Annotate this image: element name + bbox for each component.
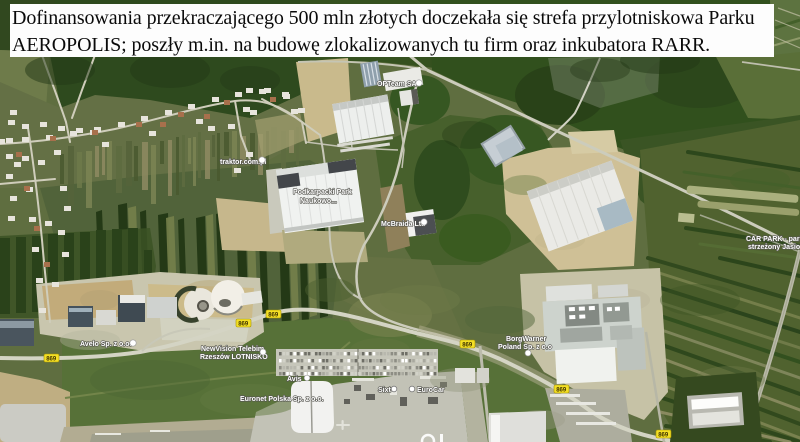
svg-text:OPTeam SA: OPTeam SA (377, 81, 417, 88)
svg-text:869: 869 (658, 432, 669, 438)
svg-text:869: 869 (556, 387, 567, 393)
svg-text:BorgWarner: BorgWarner (506, 336, 546, 343)
svg-text:Avelo Sp. z o.o.: Avelo Sp. z o.o. (80, 341, 132, 348)
svg-text:EuroCar: EuroCar (417, 387, 445, 394)
svg-text:869: 869 (46, 356, 57, 362)
svg-text:Sixt: Sixt (378, 387, 392, 394)
svg-text:869: 869 (462, 342, 473, 348)
svg-text:Podkarpacki Park: Podkarpacki Park (293, 189, 352, 196)
svg-text:NewVision Telebim: NewVision Telebim (201, 346, 264, 353)
svg-text:869: 869 (238, 321, 249, 327)
svg-text:Avis: Avis (287, 376, 302, 383)
svg-text:strzeżony Jasionka: strzeżony Jasionka (748, 244, 800, 251)
svg-text:Rzeszów LOTNISKO: Rzeszów LOTNISKO (200, 354, 268, 361)
svg-text:Naukowo...: Naukowo... (300, 198, 337, 205)
svg-text:Euronet Polska Sp. z o.o.: Euronet Polska Sp. z o.o. (240, 396, 324, 403)
svg-text:McBraida Ltd: McBraida Ltd (381, 221, 425, 228)
svg-text:869: 869 (268, 312, 279, 318)
svg-text:CAR PARK - parking: CAR PARK - parking (746, 236, 800, 243)
svg-text:Poland Sp. z o.o: Poland Sp. z o.o (498, 344, 552, 351)
